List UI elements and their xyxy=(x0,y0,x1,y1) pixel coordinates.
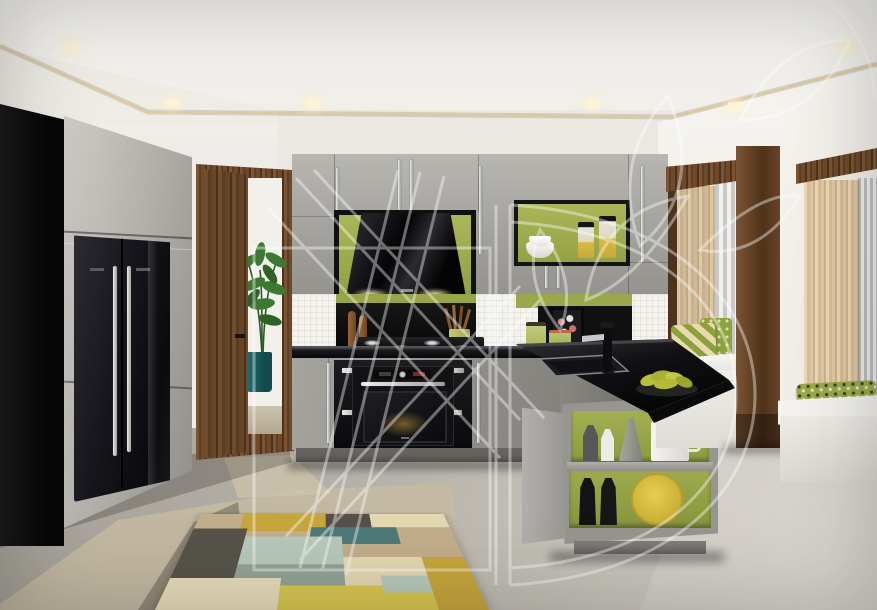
watermark xyxy=(0,0,877,610)
kitchen-render xyxy=(0,0,877,610)
